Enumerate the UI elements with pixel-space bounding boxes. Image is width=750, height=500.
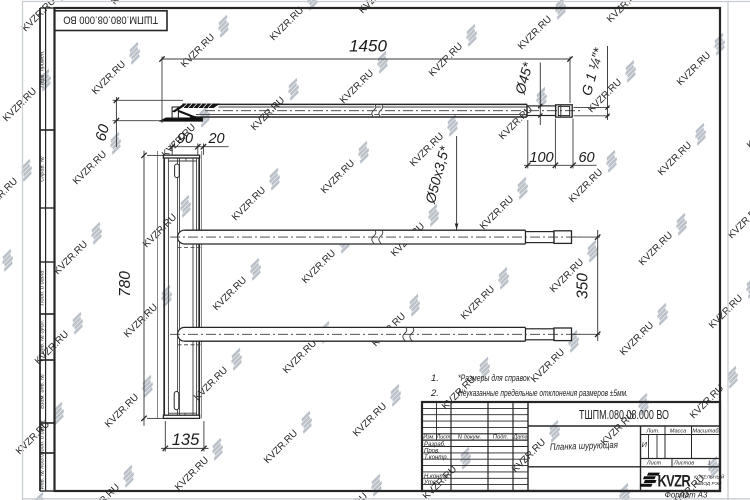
svg-text:N докум.: N докум. (458, 435, 481, 441)
svg-text:Взам. инв. №: Взам. инв. № (40, 374, 46, 409)
svg-text:350: 350 (575, 273, 592, 299)
svg-text:Инв. № подл.: Инв. № подл. (40, 455, 46, 490)
svg-text:Неуказанные предельные отклоне: Неуказанные предельные отклонения размер… (458, 388, 628, 399)
svg-text:135: 135 (172, 431, 200, 449)
svg-text:Утв.: Утв. (423, 480, 438, 486)
svg-text:ЗАВОД РЭП: ЗАВОД РЭП (694, 481, 722, 487)
svg-text:Масштаб: Масштаб (692, 429, 719, 435)
svg-text:60: 60 (578, 150, 594, 166)
svg-text:Н.контр.: Н.контр. (424, 474, 449, 480)
svg-text:И: И (642, 440, 648, 449)
svg-text:Пров.: Пров. (424, 449, 440, 455)
svg-text:Подп. и дата: Подп. и дата (40, 270, 46, 305)
svg-text:Изм.: Изм. (423, 435, 435, 441)
svg-text:100: 100 (529, 150, 553, 166)
svg-text:Масса: Масса (670, 429, 687, 435)
svg-text:Инв. № дубл.: Инв. № дубл. (40, 320, 46, 354)
svg-text:Формат А3: Формат А3 (665, 491, 708, 500)
svg-text:Справ. №: Справ. № (40, 156, 46, 181)
svg-text:90: 90 (177, 131, 193, 147)
svg-text:Т.контр.: Т.контр. (424, 455, 448, 461)
svg-text:ТШПМ.080.08.000 ВО: ТШПМ.080.08.000 ВО (579, 408, 669, 422)
svg-text:1450: 1450 (349, 37, 387, 56)
svg-text:Лист: Лист (436, 435, 451, 441)
svg-text:KVZR: KVZR (658, 473, 691, 491)
svg-text:Листов: Листов (673, 461, 694, 467)
svg-text:1.: 1. (431, 373, 439, 384)
svg-text:Лит.: Лит. (645, 429, 659, 435)
svg-text:*Размеры для справок: *Размеры для справок (458, 373, 530, 384)
svg-text:ТШПМ.080.08.000 ВО: ТШПМ.080.08.000 ВО (63, 14, 158, 26)
svg-text:780: 780 (117, 271, 134, 297)
svg-text:2.: 2. (430, 388, 439, 399)
svg-text:20: 20 (207, 131, 224, 147)
svg-text:Дата: Дата (512, 435, 527, 441)
svg-text:Лист: Лист (646, 461, 662, 467)
svg-text:Разраб.: Разраб. (424, 442, 446, 448)
svg-text:Перв. примен.: Перв. примен. (40, 50, 46, 87)
svg-text:Подп.: Подп. (493, 435, 508, 441)
svg-text:1: 1 (707, 461, 710, 467)
svg-text:Подп. и дата: Подп. и дата (40, 420, 46, 455)
